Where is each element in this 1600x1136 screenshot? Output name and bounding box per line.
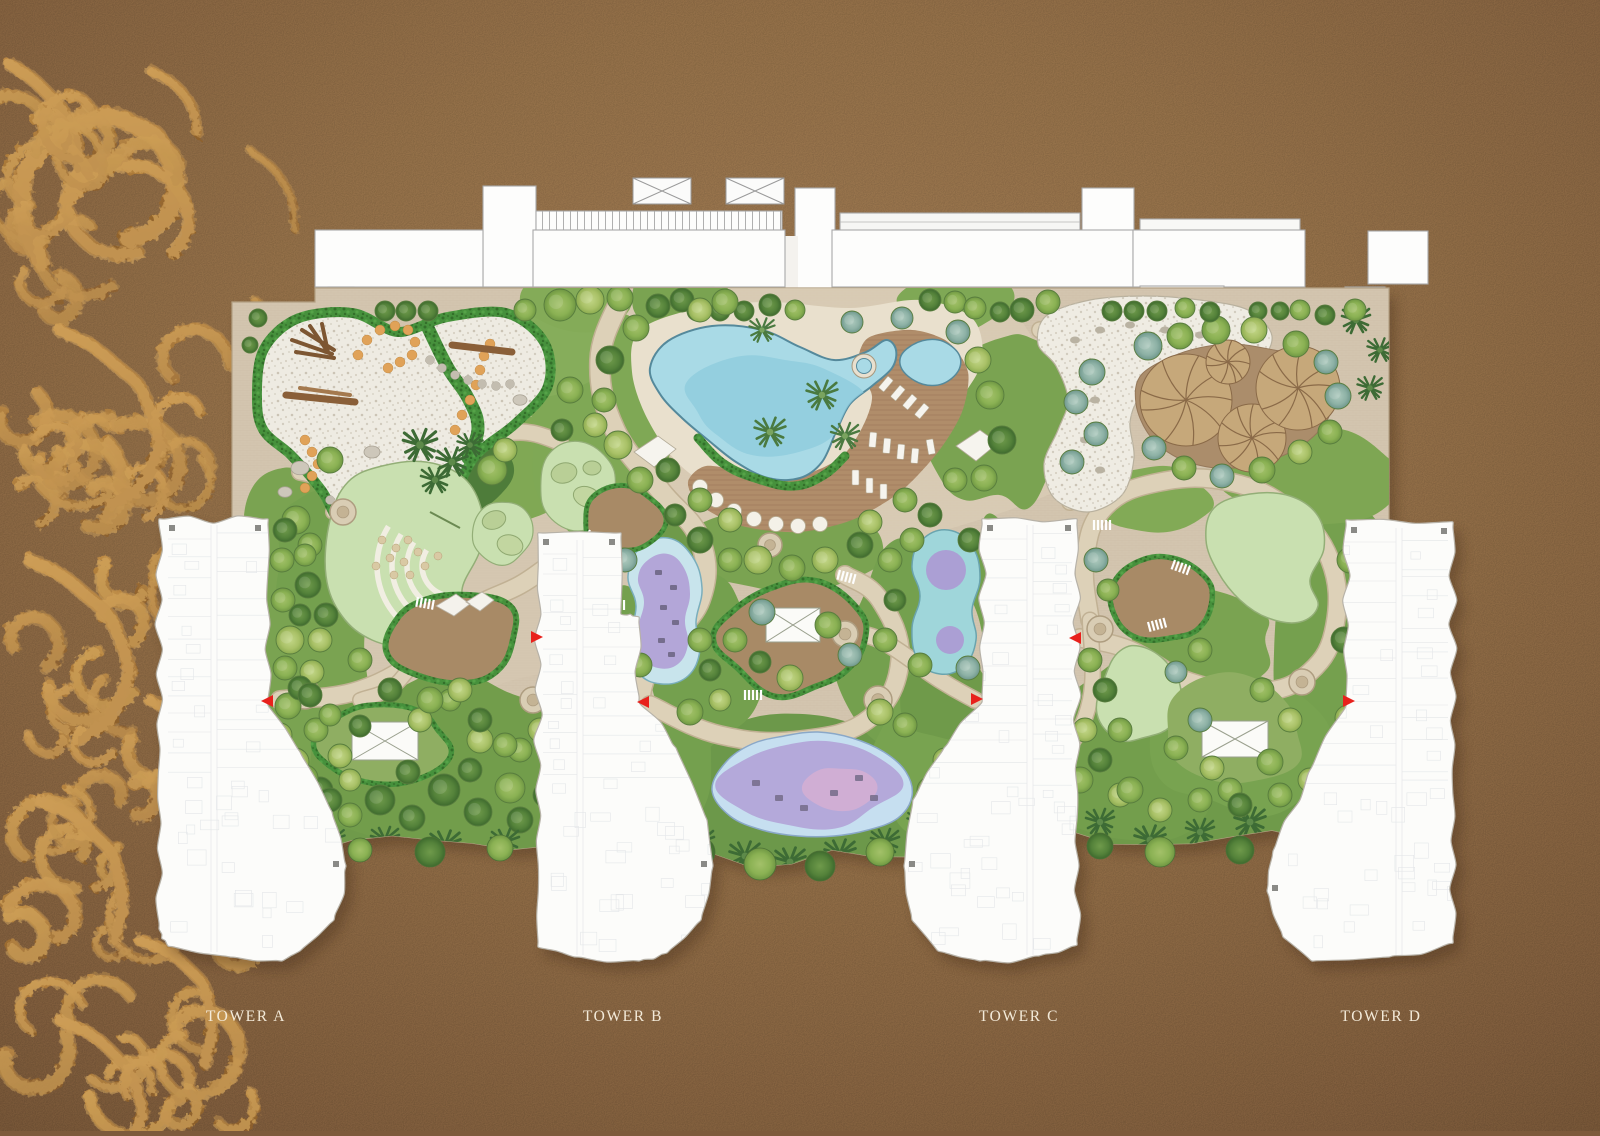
svg-text:TOWER B: TOWER B: [583, 1008, 663, 1025]
svg-text:TOWER C: TOWER C: [979, 1008, 1059, 1025]
svg-text:TOWER A: TOWER A: [206, 1008, 286, 1025]
svg-text:TOWER D: TOWER D: [1340, 1008, 1421, 1025]
